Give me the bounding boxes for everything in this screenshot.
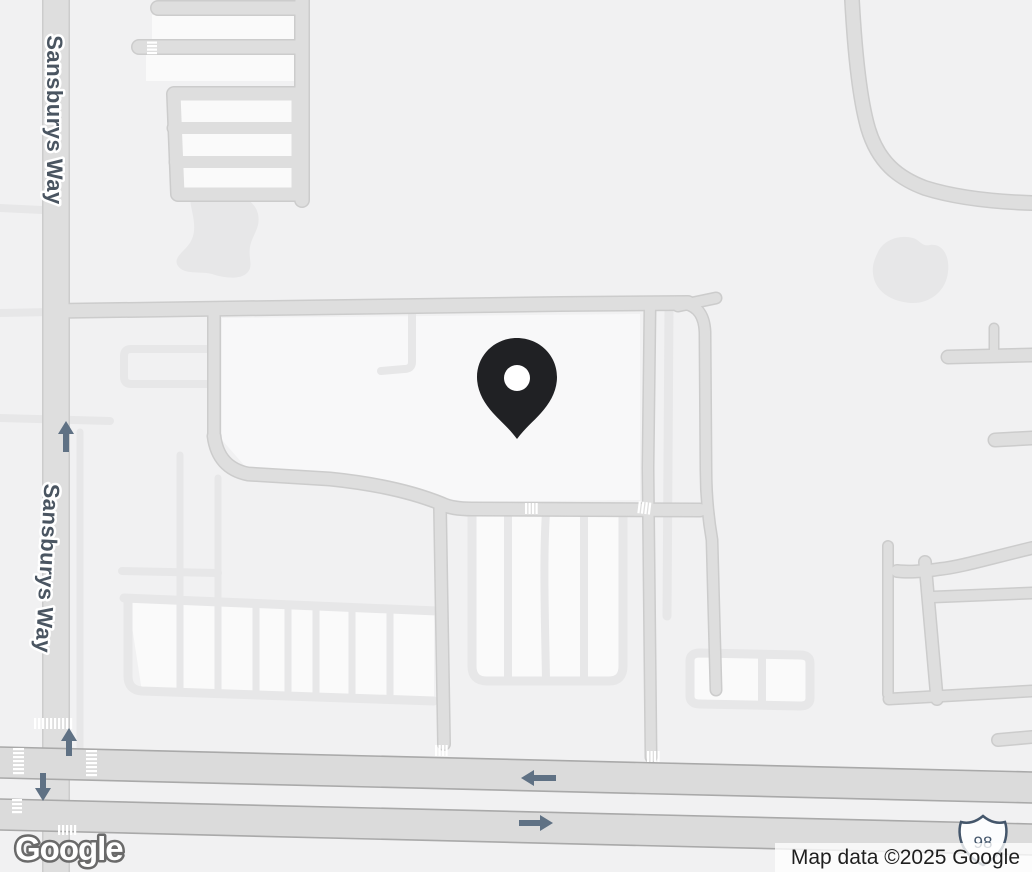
pond-east: [873, 237, 949, 303]
parking-row: [152, 15, 298, 40]
parking-row: [146, 54, 298, 81]
map-attribution: Map data ©2025 Google: [775, 843, 1032, 872]
map-canvas[interactable]: 98 Sansburys Way Sansburys Way Google: [0, 0, 1032, 872]
pin-center-dot: [504, 365, 530, 391]
google-logo[interactable]: Google: [15, 830, 123, 867]
map-viewport[interactable]: 98 Sansburys Way Sansburys Way Google Ma…: [0, 0, 1032, 872]
road-label-sansburys-way: Sansburys Way: [42, 35, 67, 205]
attribution-text: Map data ©2025 Google: [791, 846, 1020, 870]
